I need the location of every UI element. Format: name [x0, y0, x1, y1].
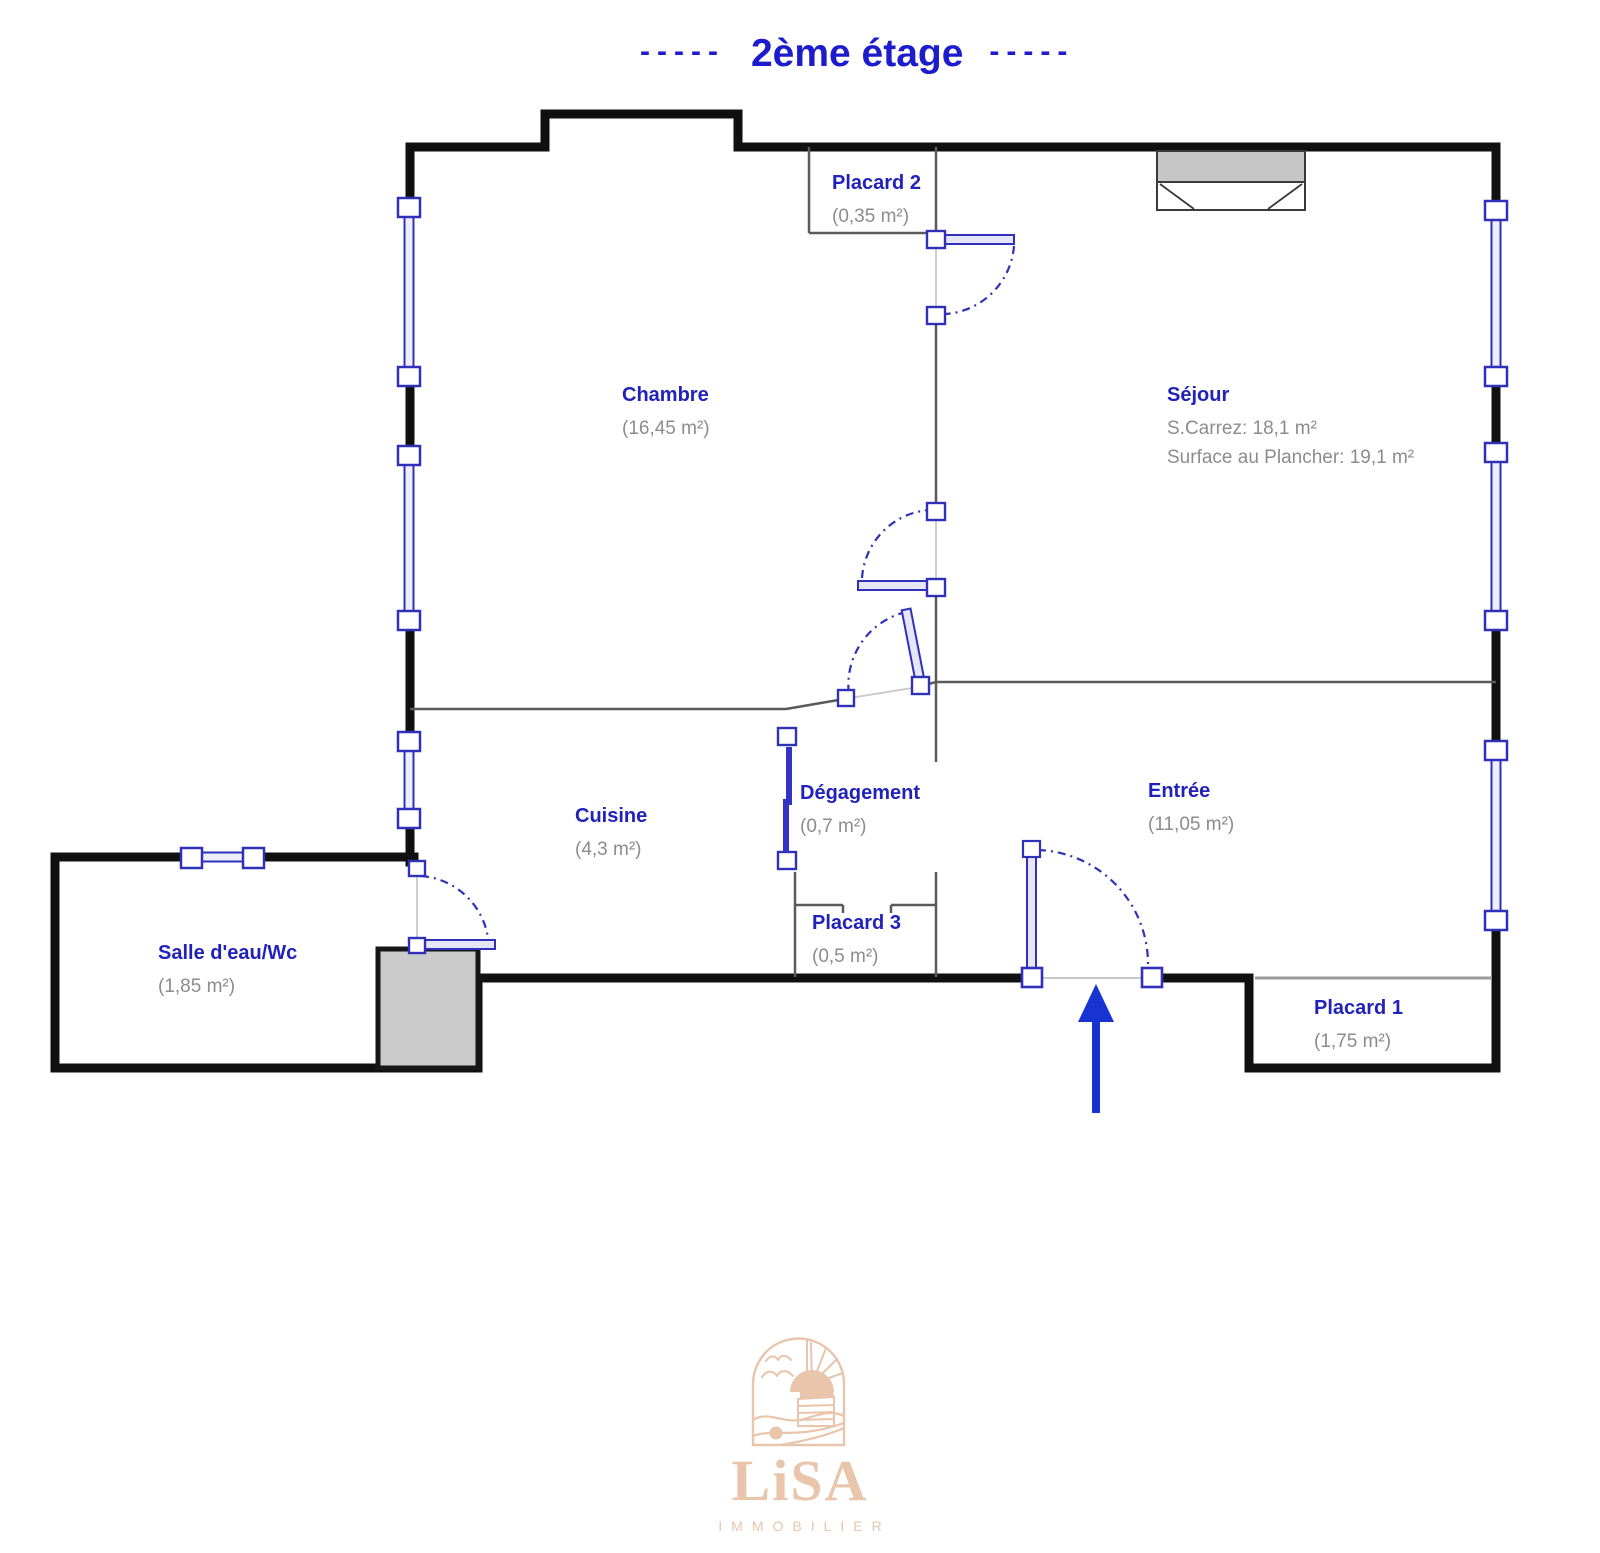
interior-walls: [410, 147, 1496, 977]
entrance-arrow-icon: [1078, 984, 1114, 1113]
room-area: (16,45 m²): [622, 414, 710, 443]
room-name: Cuisine: [575, 804, 647, 828]
door-degagement: [838, 609, 929, 706]
room-name: Séjour: [1167, 383, 1414, 407]
room-label-sejour: Séjour S.Carrez: 18,1 m² Surface au Plan…: [1167, 383, 1414, 472]
room-name: Placard 1: [1314, 996, 1403, 1020]
room-label-chambre: Chambre (16,45 m²): [622, 383, 710, 443]
room-area: (4,3 m²): [575, 835, 647, 864]
room-area: (0,5 m²): [812, 942, 901, 971]
outer-walls: [55, 114, 1496, 1068]
room-label-placard1: Placard 1 (1,75 m²): [1314, 996, 1403, 1056]
shower-tray: [378, 949, 478, 1068]
logo-brand-text: LiSA: [680, 1452, 920, 1510]
fireplace: [1157, 151, 1305, 210]
room-area: (0,7 m²): [800, 812, 920, 841]
floor-plan: [0, 0, 1600, 1553]
room-name: Placard 3: [812, 911, 901, 935]
room-area-plancher: Surface au Plancher: 19,1 m²: [1167, 443, 1414, 472]
room-name: Placard 2: [832, 171, 921, 195]
door-salle-eau: [409, 861, 495, 953]
room-label-entree: Entrée (11,05 m²): [1148, 779, 1234, 839]
room-name: Dégagement: [800, 781, 920, 805]
room-label-degagement: Dégagement (0,7 m²): [800, 781, 920, 841]
room-area: (1,75 m²): [1314, 1027, 1403, 1056]
window: [398, 446, 420, 630]
room-label-salle-eau: Salle d'eau/Wc (1,85 m²): [158, 941, 297, 1001]
entrance-door: [1022, 841, 1162, 987]
room-area: (0,35 m²): [832, 202, 921, 231]
door-placard2: [927, 231, 1014, 324]
window: [181, 848, 264, 868]
room-name: Entrée: [1148, 779, 1234, 803]
room-label-placard2: Placard 2 (0,35 m²): [832, 171, 921, 231]
floor-plan-page: { "title": { "dashes_left": "-----", "te…: [0, 0, 1600, 1553]
room-label-placard3: Placard 3 (0,5 m²): [812, 911, 901, 971]
room-area-carrez: S.Carrez: 18,1 m²: [1167, 414, 1414, 443]
lighthouse-seaside-logo-icon: [750, 1336, 850, 1448]
window: [1485, 741, 1507, 930]
window: [398, 732, 420, 828]
window: [398, 198, 420, 386]
room-label-cuisine: Cuisine (4,3 m²): [575, 804, 647, 864]
room-area: (1,85 m²): [158, 972, 297, 1001]
door-sejour: [858, 503, 945, 596]
room-area: (11,05 m²): [1148, 810, 1234, 839]
window: [1485, 443, 1507, 630]
window: [1485, 201, 1507, 386]
agency-logo: LiSA IMMOBILIER: [680, 1336, 920, 1534]
room-name: Chambre: [622, 383, 710, 407]
room-name: Salle d'eau/Wc: [158, 941, 297, 965]
logo-tagline-text: IMMOBILIER: [680, 1518, 920, 1534]
sliding-door-cuisine: [778, 728, 796, 869]
